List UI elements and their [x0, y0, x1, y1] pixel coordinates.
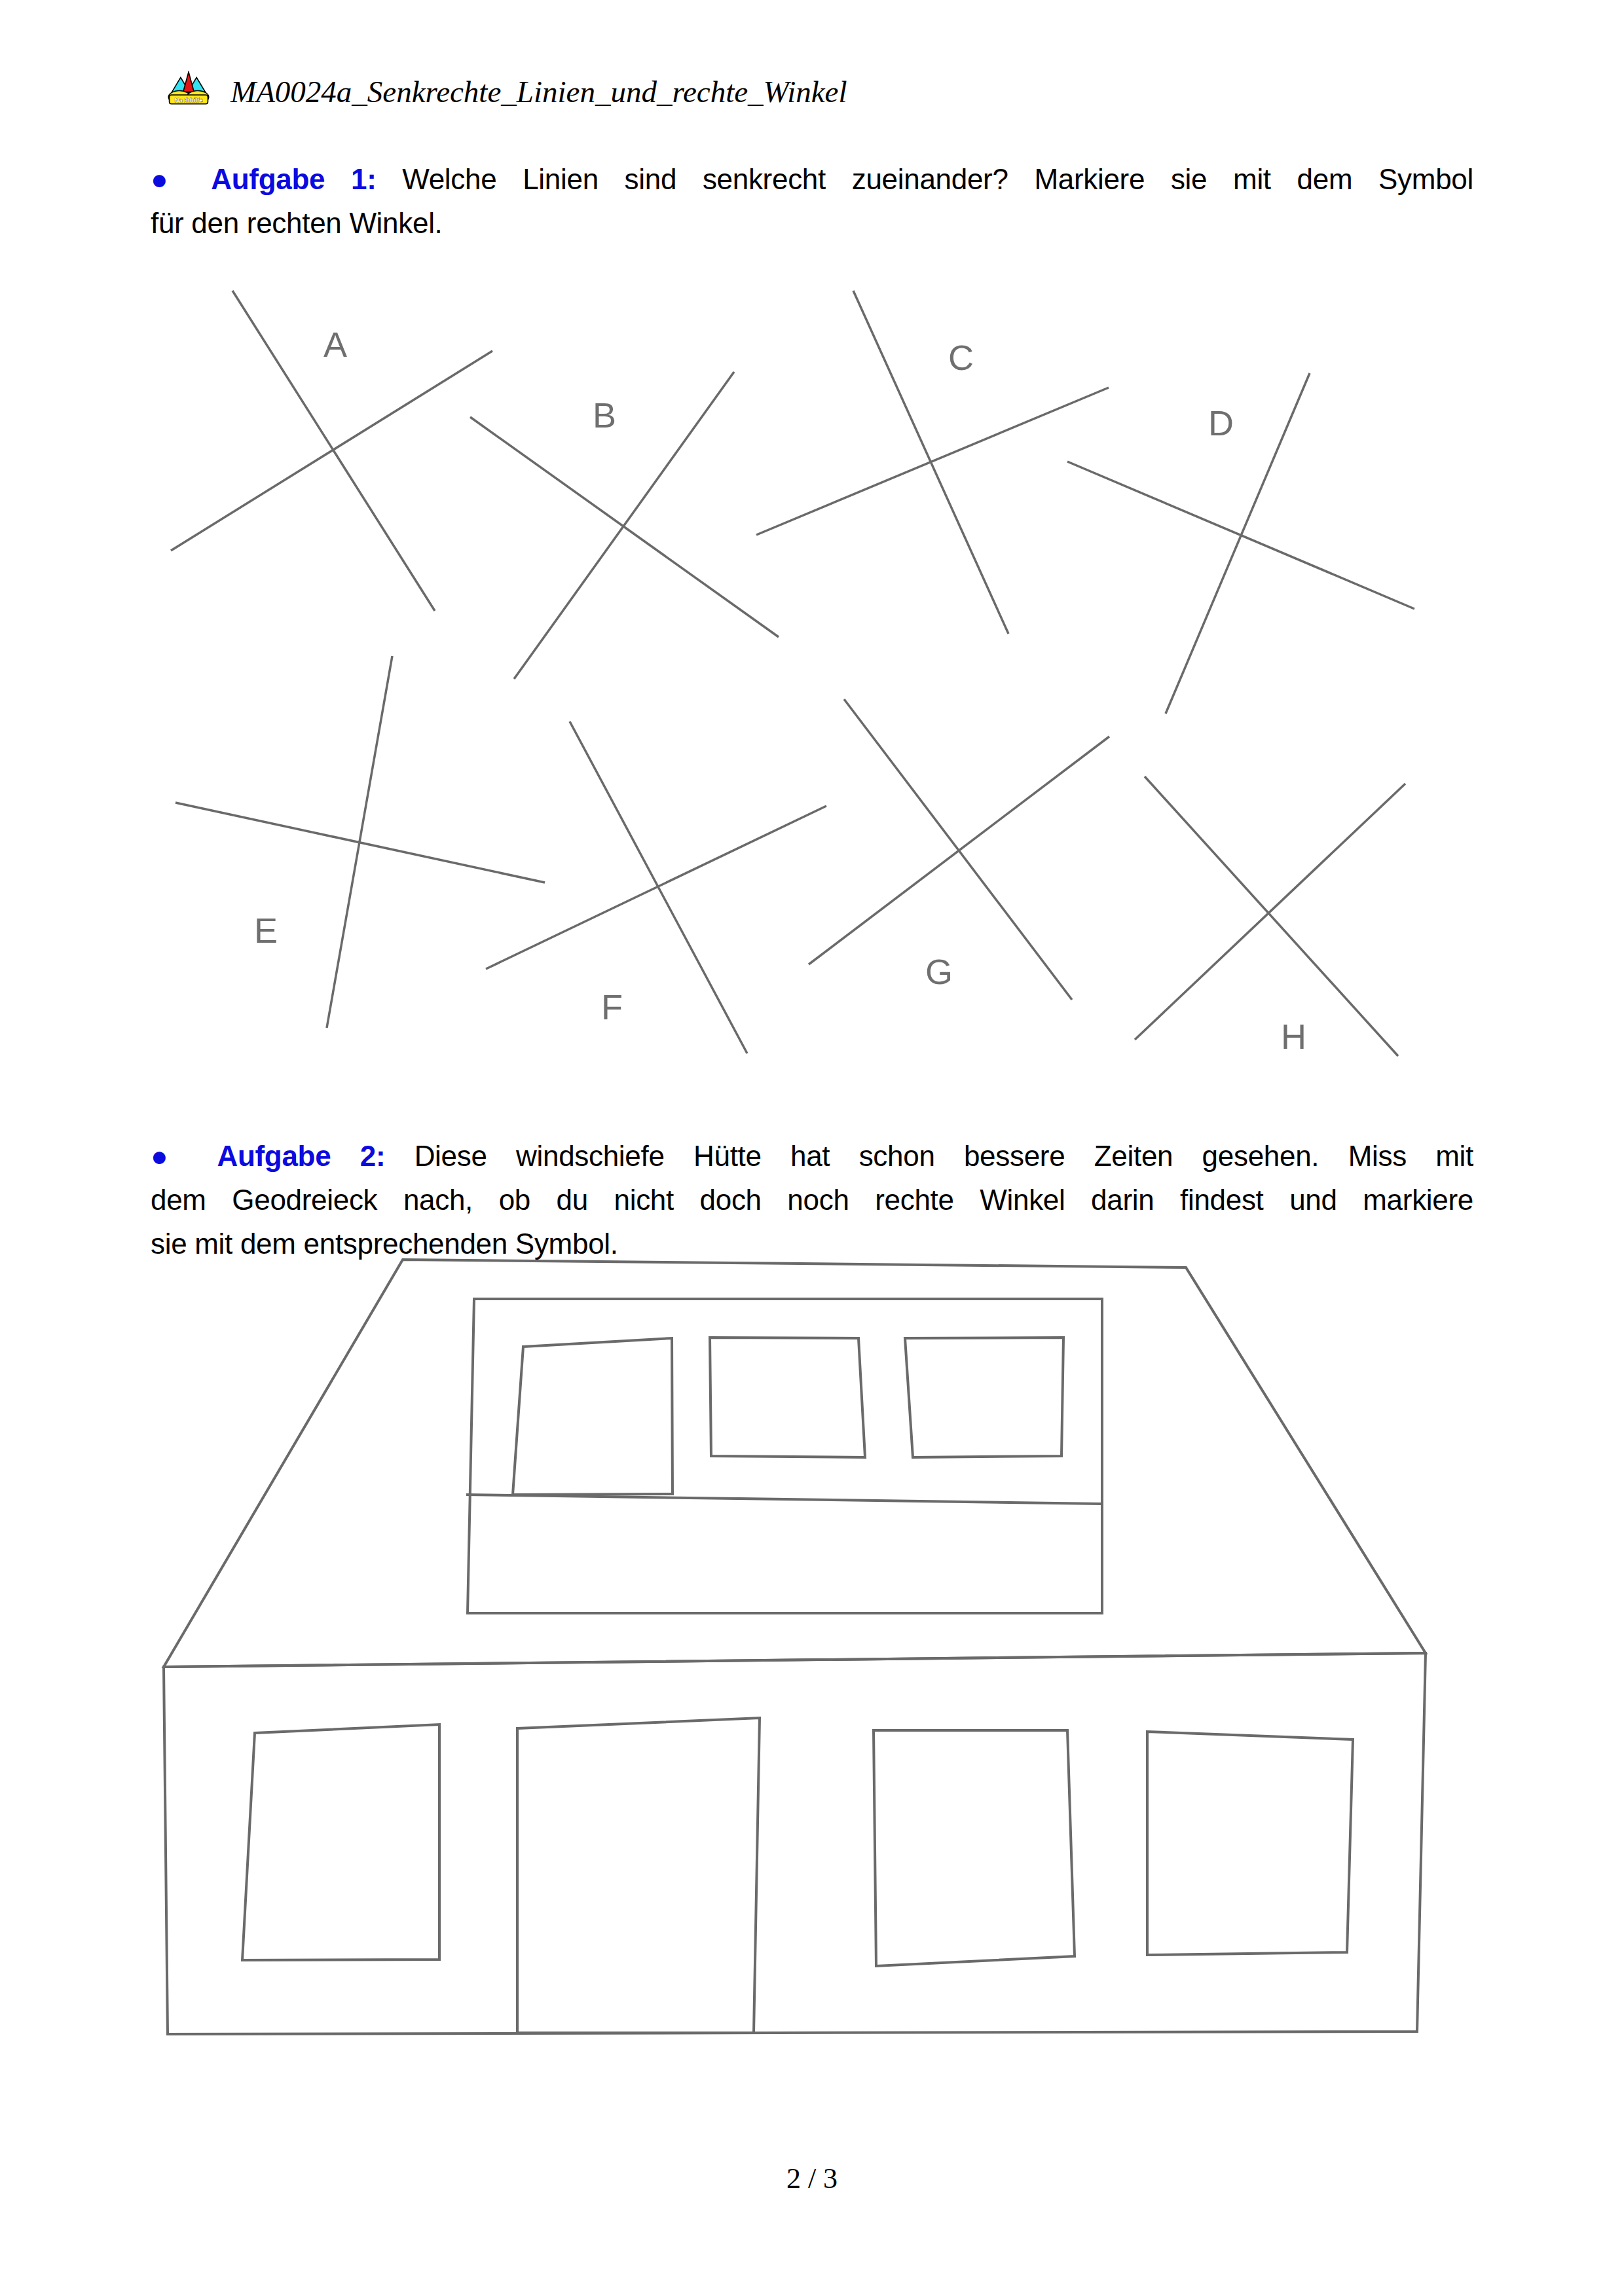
line-pair-label-C: C: [948, 338, 974, 377]
hut-roof: [164, 1260, 1426, 1667]
hut-dormer-window-right: [905, 1338, 1063, 1457]
task-1-label: ● Aufgabe 1:: [151, 163, 376, 195]
hut-window-right: [1147, 1732, 1353, 1955]
task-1-figure: ABCDEFGH: [131, 275, 1493, 1100]
task-2-line-1: ● Aufgabe 2: Diese windschiefe Hütte hat…: [151, 1134, 1473, 1178]
line-A2: [171, 351, 492, 551]
hut-front-door: [517, 1718, 760, 2033]
line-pair-label-H: H: [1281, 1017, 1306, 1056]
line-F2: [486, 806, 826, 969]
hut-facade: [164, 1653, 1426, 2034]
logo-label: Nachhilfe: [174, 96, 203, 103]
task-1-line-1: ● Aufgabe 1: Welche Linien sind senkrech…: [151, 157, 1473, 201]
line-pair-label-F: F: [601, 987, 623, 1027]
hut-window-left: [242, 1724, 439, 1960]
document-title: MA0024a_Senkrechte_Linien_und_rechte_Win…: [231, 73, 847, 110]
task-1-line-2: für den rechten Winkel.: [151, 201, 1473, 245]
line-pair-label-D: D: [1208, 403, 1234, 443]
line-H2: [1135, 784, 1405, 1040]
line-dormer-divider: [466, 1495, 1102, 1504]
line-G2: [809, 737, 1109, 964]
page-number: 2 / 3: [0, 2162, 1624, 2195]
line-D2: [1067, 462, 1414, 609]
task-2-line-2: dem Geodreieck nach, ob du nicht doch no…: [151, 1178, 1473, 1222]
line-pair-label-B: B: [593, 395, 616, 435]
line-pair-label-A: A: [323, 325, 347, 364]
line-pair-label-E: E: [254, 911, 278, 950]
line-C2: [756, 388, 1109, 535]
hut-dormer-window-middle: [710, 1338, 865, 1457]
line-H1: [1145, 776, 1398, 1056]
line-G1: [844, 699, 1072, 1000]
worksheet-page: Nachhilfe MA0024a_Senkrechte_Linien_und_…: [0, 0, 1624, 2296]
task-2-figure: [151, 1231, 1473, 2049]
line-B2: [470, 417, 779, 637]
line-E2: [175, 803, 545, 883]
mountain-logo-icon: Nachhilfe: [168, 71, 210, 105]
task-1-text-1: Welche Linien sind senkrecht zueinander?…: [402, 163, 1473, 195]
line-pair-label-G: G: [925, 952, 953, 991]
task-2-text-1: Diese windschiefe Hütte hat schon besser…: [415, 1140, 1473, 1172]
line-D1: [1166, 373, 1310, 714]
hut-window-middle: [874, 1730, 1075, 1966]
logo-peak-red: [183, 72, 194, 92]
task-1: ● Aufgabe 1: Welche Linien sind senkrech…: [151, 157, 1473, 245]
hut-dormer-door: [513, 1338, 673, 1495]
task-2-label: ● Aufgabe 2:: [151, 1140, 385, 1172]
